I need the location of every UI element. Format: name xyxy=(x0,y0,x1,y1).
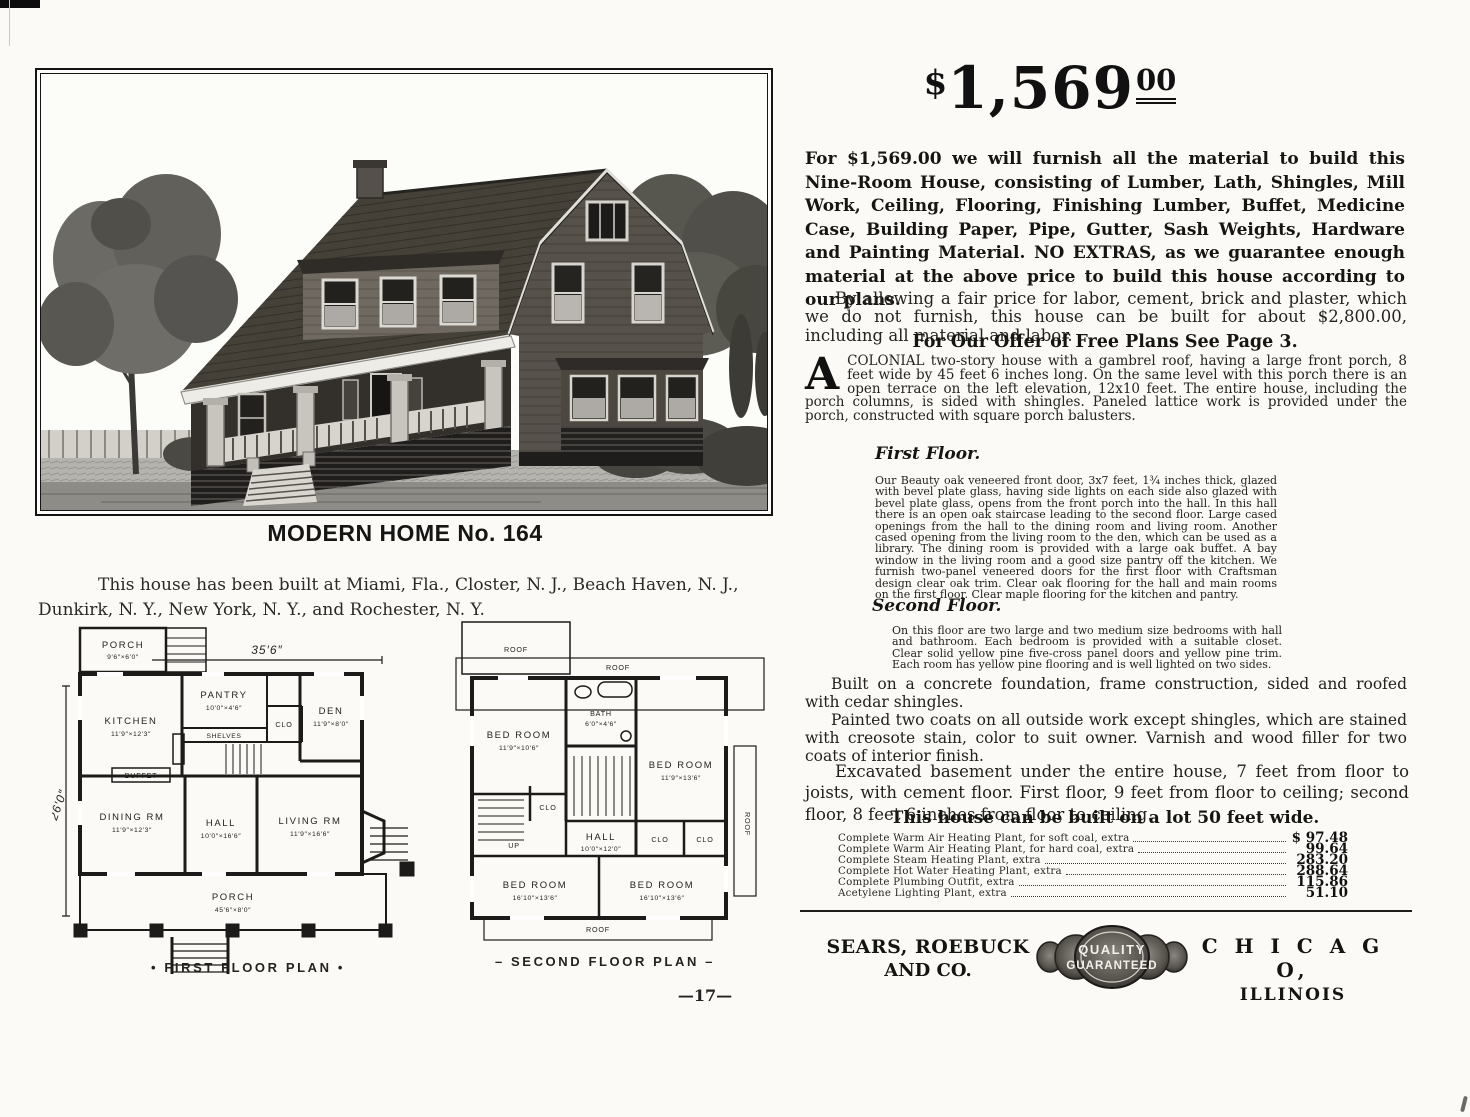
second-floor-plan-caption: – SECOND FLOOR PLAN – xyxy=(495,954,715,969)
dot-leader xyxy=(1019,885,1286,886)
sp-bed4-label: BED ROOM xyxy=(630,880,695,891)
second-floor-paragraph: On this floor are two large and two medi… xyxy=(892,625,1282,671)
sp-clo3-label: CLO xyxy=(696,835,713,844)
fp-shelves-label: SHELVES xyxy=(206,733,241,740)
fp-living-dim: 11′9″×16′6″ xyxy=(290,831,330,838)
fp-kitchen-dim: 11′9″×12′3″ xyxy=(111,731,151,738)
sp-roof-top-label: ROOF xyxy=(606,663,630,672)
price-cents: 00 xyxy=(1136,63,1176,104)
sp-bed4-dim: 16′10″×13′6″ xyxy=(640,895,685,902)
footer-rule xyxy=(800,910,1412,912)
first-floor-paragraph: Our Beauty oak veneered front door, 3x7 … xyxy=(875,475,1277,600)
sp-bed2-dim: 11′9″×13′6″ xyxy=(661,775,701,782)
attic-window xyxy=(587,202,627,240)
sp-roof-bottom-label: ROOF xyxy=(586,925,610,934)
sp-bed1-label: BED ROOM xyxy=(487,730,552,741)
sp-bed1-dim: 11′9″×10′6″ xyxy=(499,745,539,752)
dot-leader xyxy=(1138,852,1286,853)
scan-edge-line xyxy=(9,0,10,46)
seal-coins xyxy=(1037,926,1187,988)
house-illustration-inner-frame xyxy=(40,73,768,511)
sp-bath-label: BATH xyxy=(590,709,612,718)
chimney xyxy=(353,160,387,198)
seal-line1: QUALITY xyxy=(1078,942,1146,957)
quality-guaranteed-seal: QUALITY GUARANTEED xyxy=(1036,924,1188,990)
fp-porch-bottom-dim: 45′6″×8′0″ xyxy=(215,907,251,914)
fp-pantry-label: PANTRY xyxy=(200,690,247,701)
extras-row: Acetylene Lighting Plant, extra 51.10 xyxy=(838,888,1348,899)
dot-leader xyxy=(1133,841,1286,842)
second-floor-heading: Second Floor. xyxy=(872,596,1001,616)
page-title: MODERN HOME No. 164 xyxy=(35,520,775,547)
scan-corner-mark xyxy=(0,0,40,8)
colonial-text: COLONIAL two-story house with a gambrel … xyxy=(805,353,1407,424)
dormer xyxy=(297,250,505,340)
sp-bath-dim: 6′0″×4′6″ xyxy=(585,721,617,728)
first-floor-heading: First Floor. xyxy=(875,444,980,464)
sp-bed3-dim: 16′10″×13′6″ xyxy=(513,895,558,902)
fp-dining-label: DINING RM xyxy=(99,812,164,823)
fp-buffet-label: BUFFET xyxy=(125,771,158,780)
fp-living-label: LIVING RM xyxy=(279,816,342,827)
second-floor-plan: ROOF ROOF ROOF ROOF BED ROOM 11′9″×10′6″… xyxy=(450,616,772,984)
fp-porch-top-dim: 9′6″×6′0″ xyxy=(107,654,139,661)
fp-clo-label: CLO xyxy=(275,720,292,729)
extras-row-price: 51.10 xyxy=(1290,888,1348,899)
fp-den-dim: 11′9″×8′0″ xyxy=(313,721,349,728)
fp-porch-bottom-label: PORCH xyxy=(212,892,254,903)
extras-row-label: Acetylene Lighting Plant, extra xyxy=(838,887,1007,899)
painted-paragraph: Painted two coats on all outside work ex… xyxy=(805,711,1407,765)
sp-roof-right-label: ROOF xyxy=(743,812,752,836)
company-city: C H I C A G O, ILLINOIS xyxy=(1198,934,1388,1005)
foundation-paragraph: Built on a concrete foundation, frame co… xyxy=(805,675,1407,712)
lot-width-heading: This house can be built on a lot 50 feet… xyxy=(805,808,1405,828)
intro-paragraph: For $1,569.00 we will furnish all the ma… xyxy=(805,148,1405,313)
sp-bed3-label: BED ROOM xyxy=(503,880,568,891)
company-line2: AND CO. xyxy=(818,960,1038,981)
fp-porch-top-label: PORCH xyxy=(102,640,144,651)
dot-leader xyxy=(1011,896,1286,897)
fp-dining-dim: 11′9″×12′3″ xyxy=(112,827,152,834)
extras-price-list: Complete Warm Air Heating Plant, for sof… xyxy=(838,833,1348,899)
fp-height-dim: 26′0″ xyxy=(52,787,70,822)
scan-squiggle-mark xyxy=(1460,1096,1468,1112)
sp-bed2-label: BED ROOM xyxy=(649,760,714,771)
house-illustration xyxy=(41,74,768,511)
fp-pantry-dim: 10′0″×4′6″ xyxy=(206,705,242,712)
dot-leader xyxy=(1066,874,1286,875)
price-dollar-sign: $ xyxy=(924,63,948,103)
dot-leader xyxy=(1045,863,1286,864)
company-line1: SEARS, ROEBUCK xyxy=(818,936,1038,958)
city-line2: ILLINOIS xyxy=(1198,985,1388,1005)
first-floor-plan-caption: • FIRST FLOOR PLAN • xyxy=(151,960,345,975)
sp-clo2-label: CLO xyxy=(651,835,668,844)
bay-window xyxy=(555,358,709,426)
fp-hall-dim: 10′0″×16′6″ xyxy=(201,833,242,840)
sp-up-label: UP xyxy=(508,841,520,850)
sp-hall-label: HALL xyxy=(586,832,616,843)
price-headline: $1,56900 xyxy=(760,54,1340,122)
city-line1: C H I C A G O, xyxy=(1198,934,1388,982)
colonial-paragraph: ACOLONIAL two-story house with a gambrel… xyxy=(805,355,1407,424)
free-plans-heading: For Our Offer of Free Plans See Page 3. xyxy=(805,332,1405,352)
house-illustration-frame xyxy=(35,68,773,516)
company-name: SEARS, ROEBUCK AND CO. xyxy=(818,936,1038,981)
dormer-windows xyxy=(323,276,475,328)
fp-den-label: DEN xyxy=(319,706,344,717)
page-number: —17— xyxy=(650,986,760,1005)
seal-line2: GUARANTEED xyxy=(1066,960,1157,972)
fp-hall-label: HALL xyxy=(206,818,236,829)
fp-kitchen-label: KITCHEN xyxy=(105,716,158,727)
fp-width-dim: 35′6″ xyxy=(251,643,283,657)
first-floor-plan: PORCH 9′6″×6′0″ 35′6″ 26′0″ PANTRY 10′0″… xyxy=(52,616,424,992)
sp-clo1-label: CLO xyxy=(539,803,556,812)
sp-hall-dim: 10′0″×12′0″ xyxy=(581,846,622,853)
drop-cap: A xyxy=(805,357,839,393)
sp-roof-tl-label: ROOF xyxy=(504,645,528,654)
price-main: 1,569 xyxy=(947,54,1134,122)
